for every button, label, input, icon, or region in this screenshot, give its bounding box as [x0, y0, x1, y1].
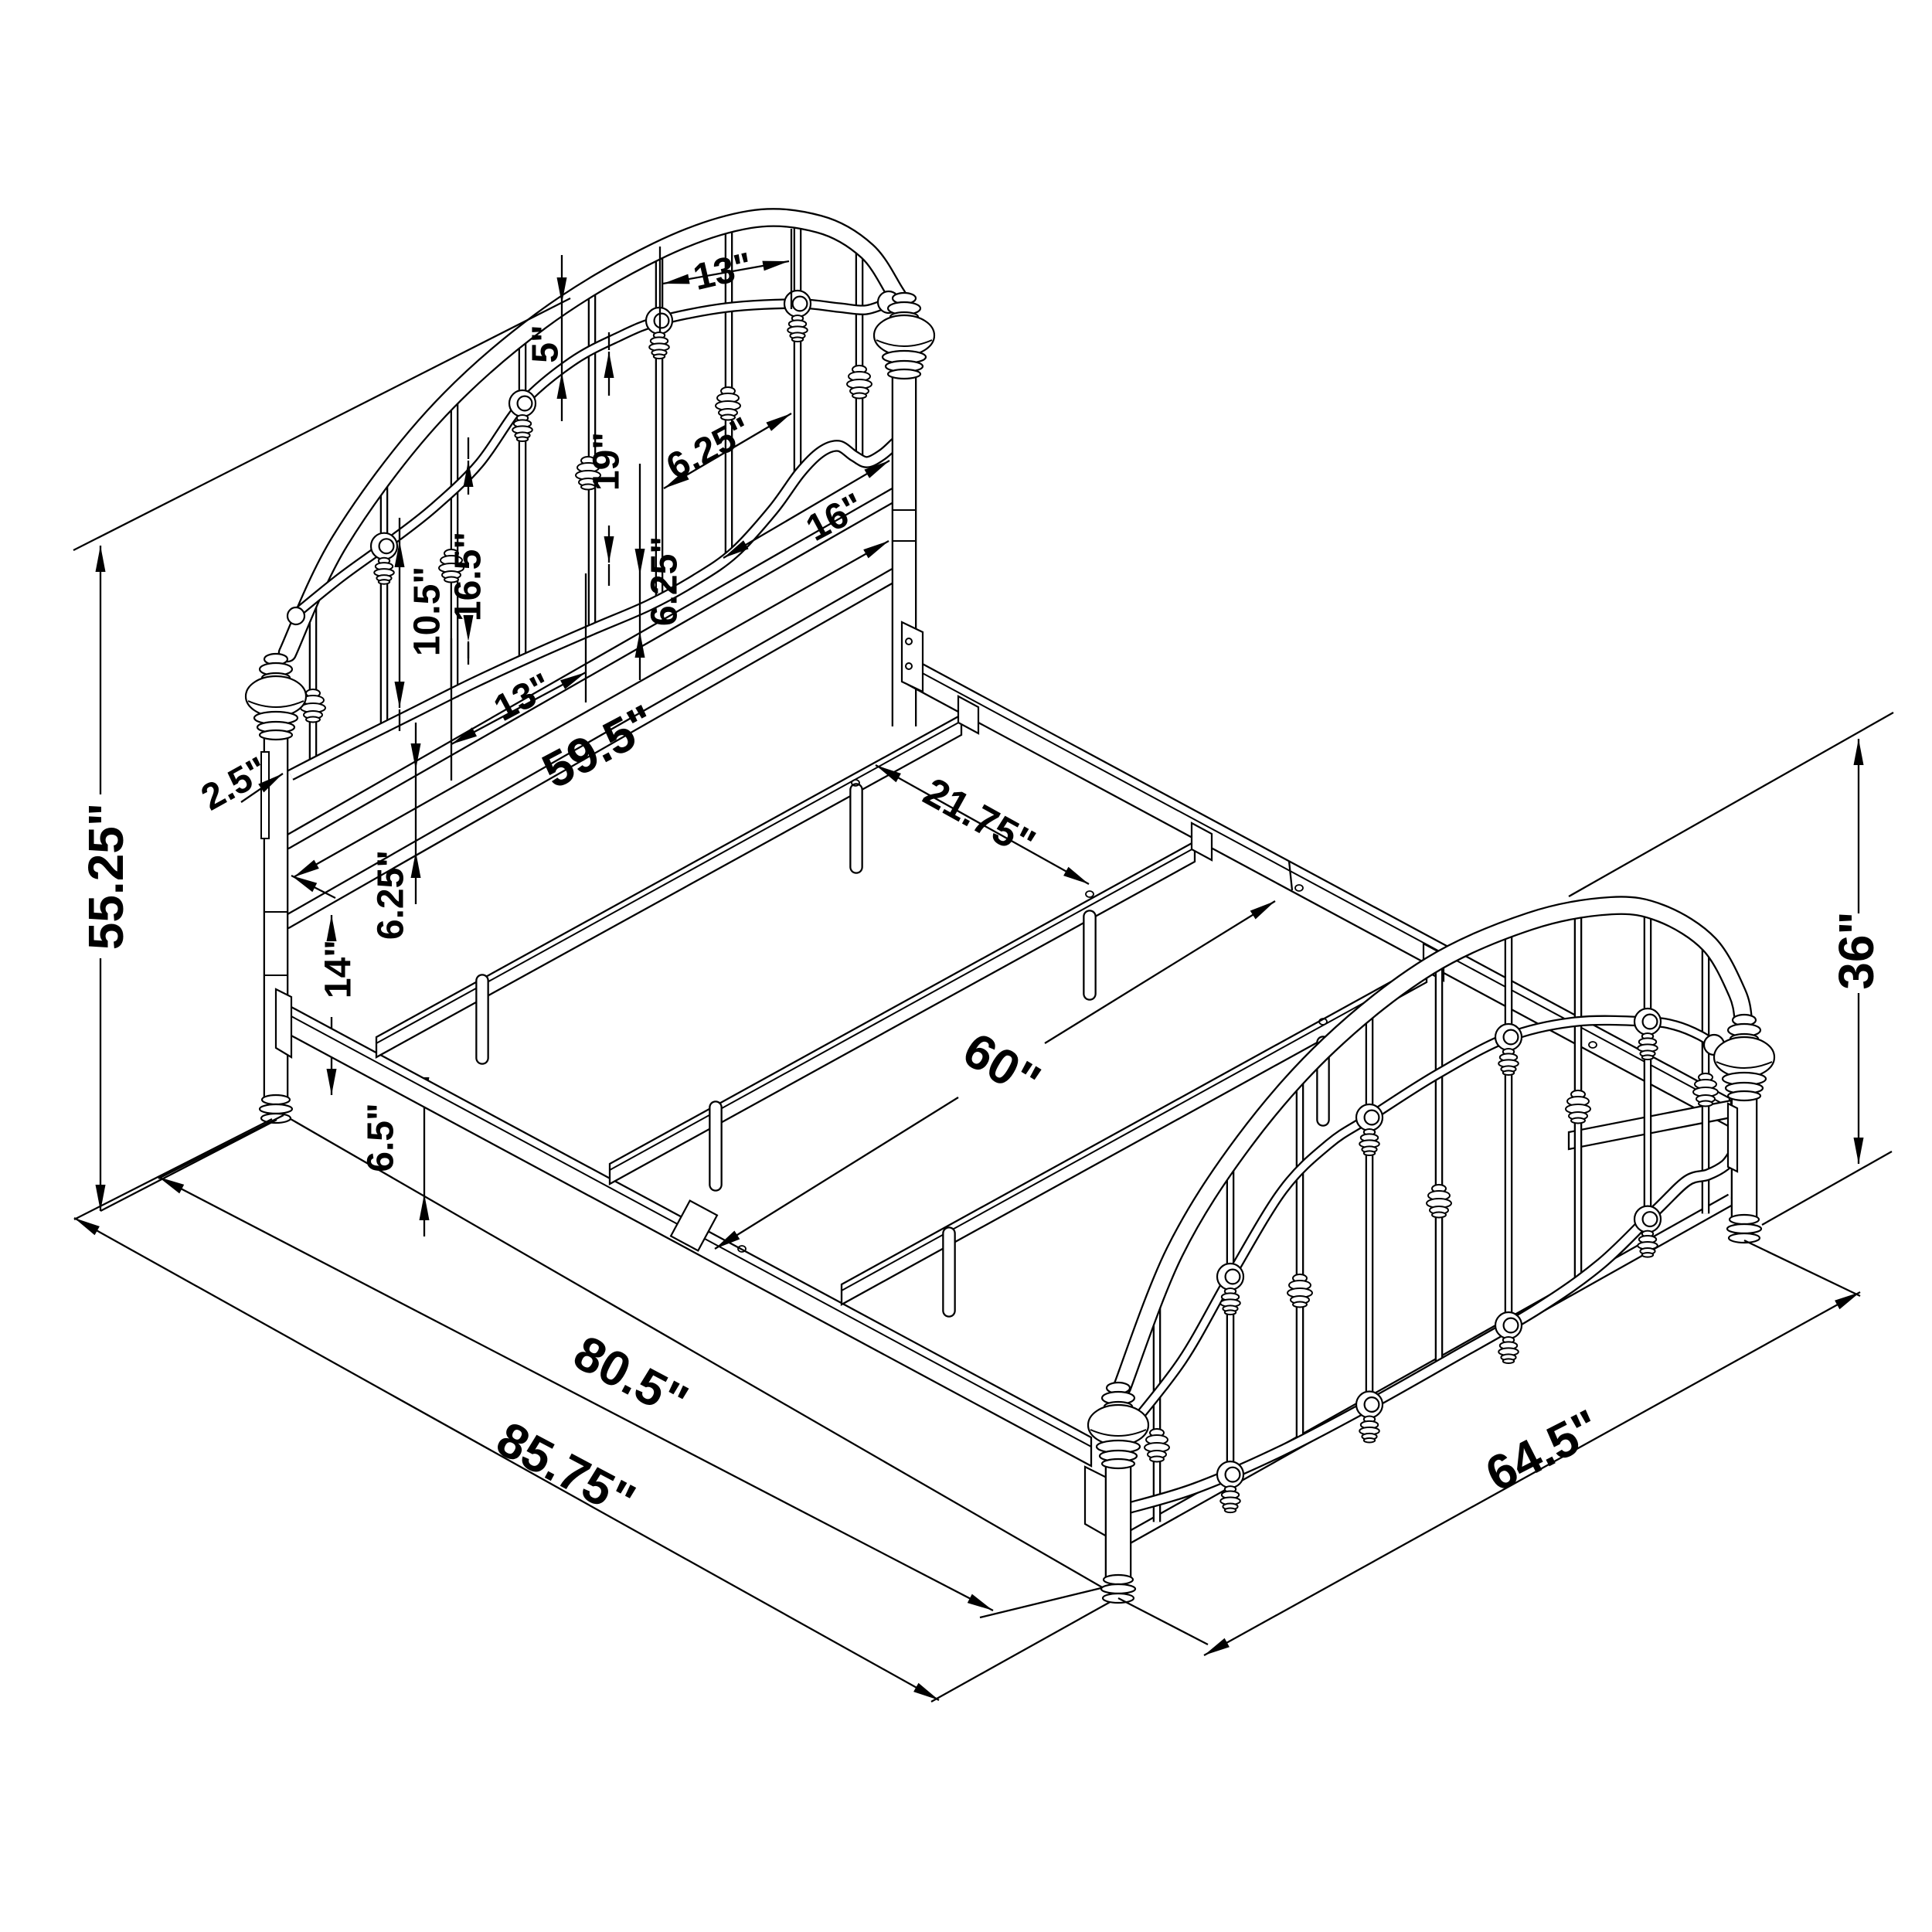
svg-text:16.5": 16.5" [447, 532, 488, 621]
svg-text:6.5": 6.5" [360, 1103, 401, 1172]
svg-text:36": 36" [1828, 911, 1884, 990]
svg-text:5": 5" [525, 325, 566, 362]
svg-text:6.25": 6.25" [370, 850, 411, 940]
svg-text:10.5": 10.5" [406, 566, 447, 656]
svg-text:19": 19" [586, 432, 627, 491]
svg-text:55.25": 55.25" [78, 803, 134, 951]
svg-text:14": 14" [318, 940, 359, 998]
svg-text:6.25": 6.25" [644, 536, 685, 626]
